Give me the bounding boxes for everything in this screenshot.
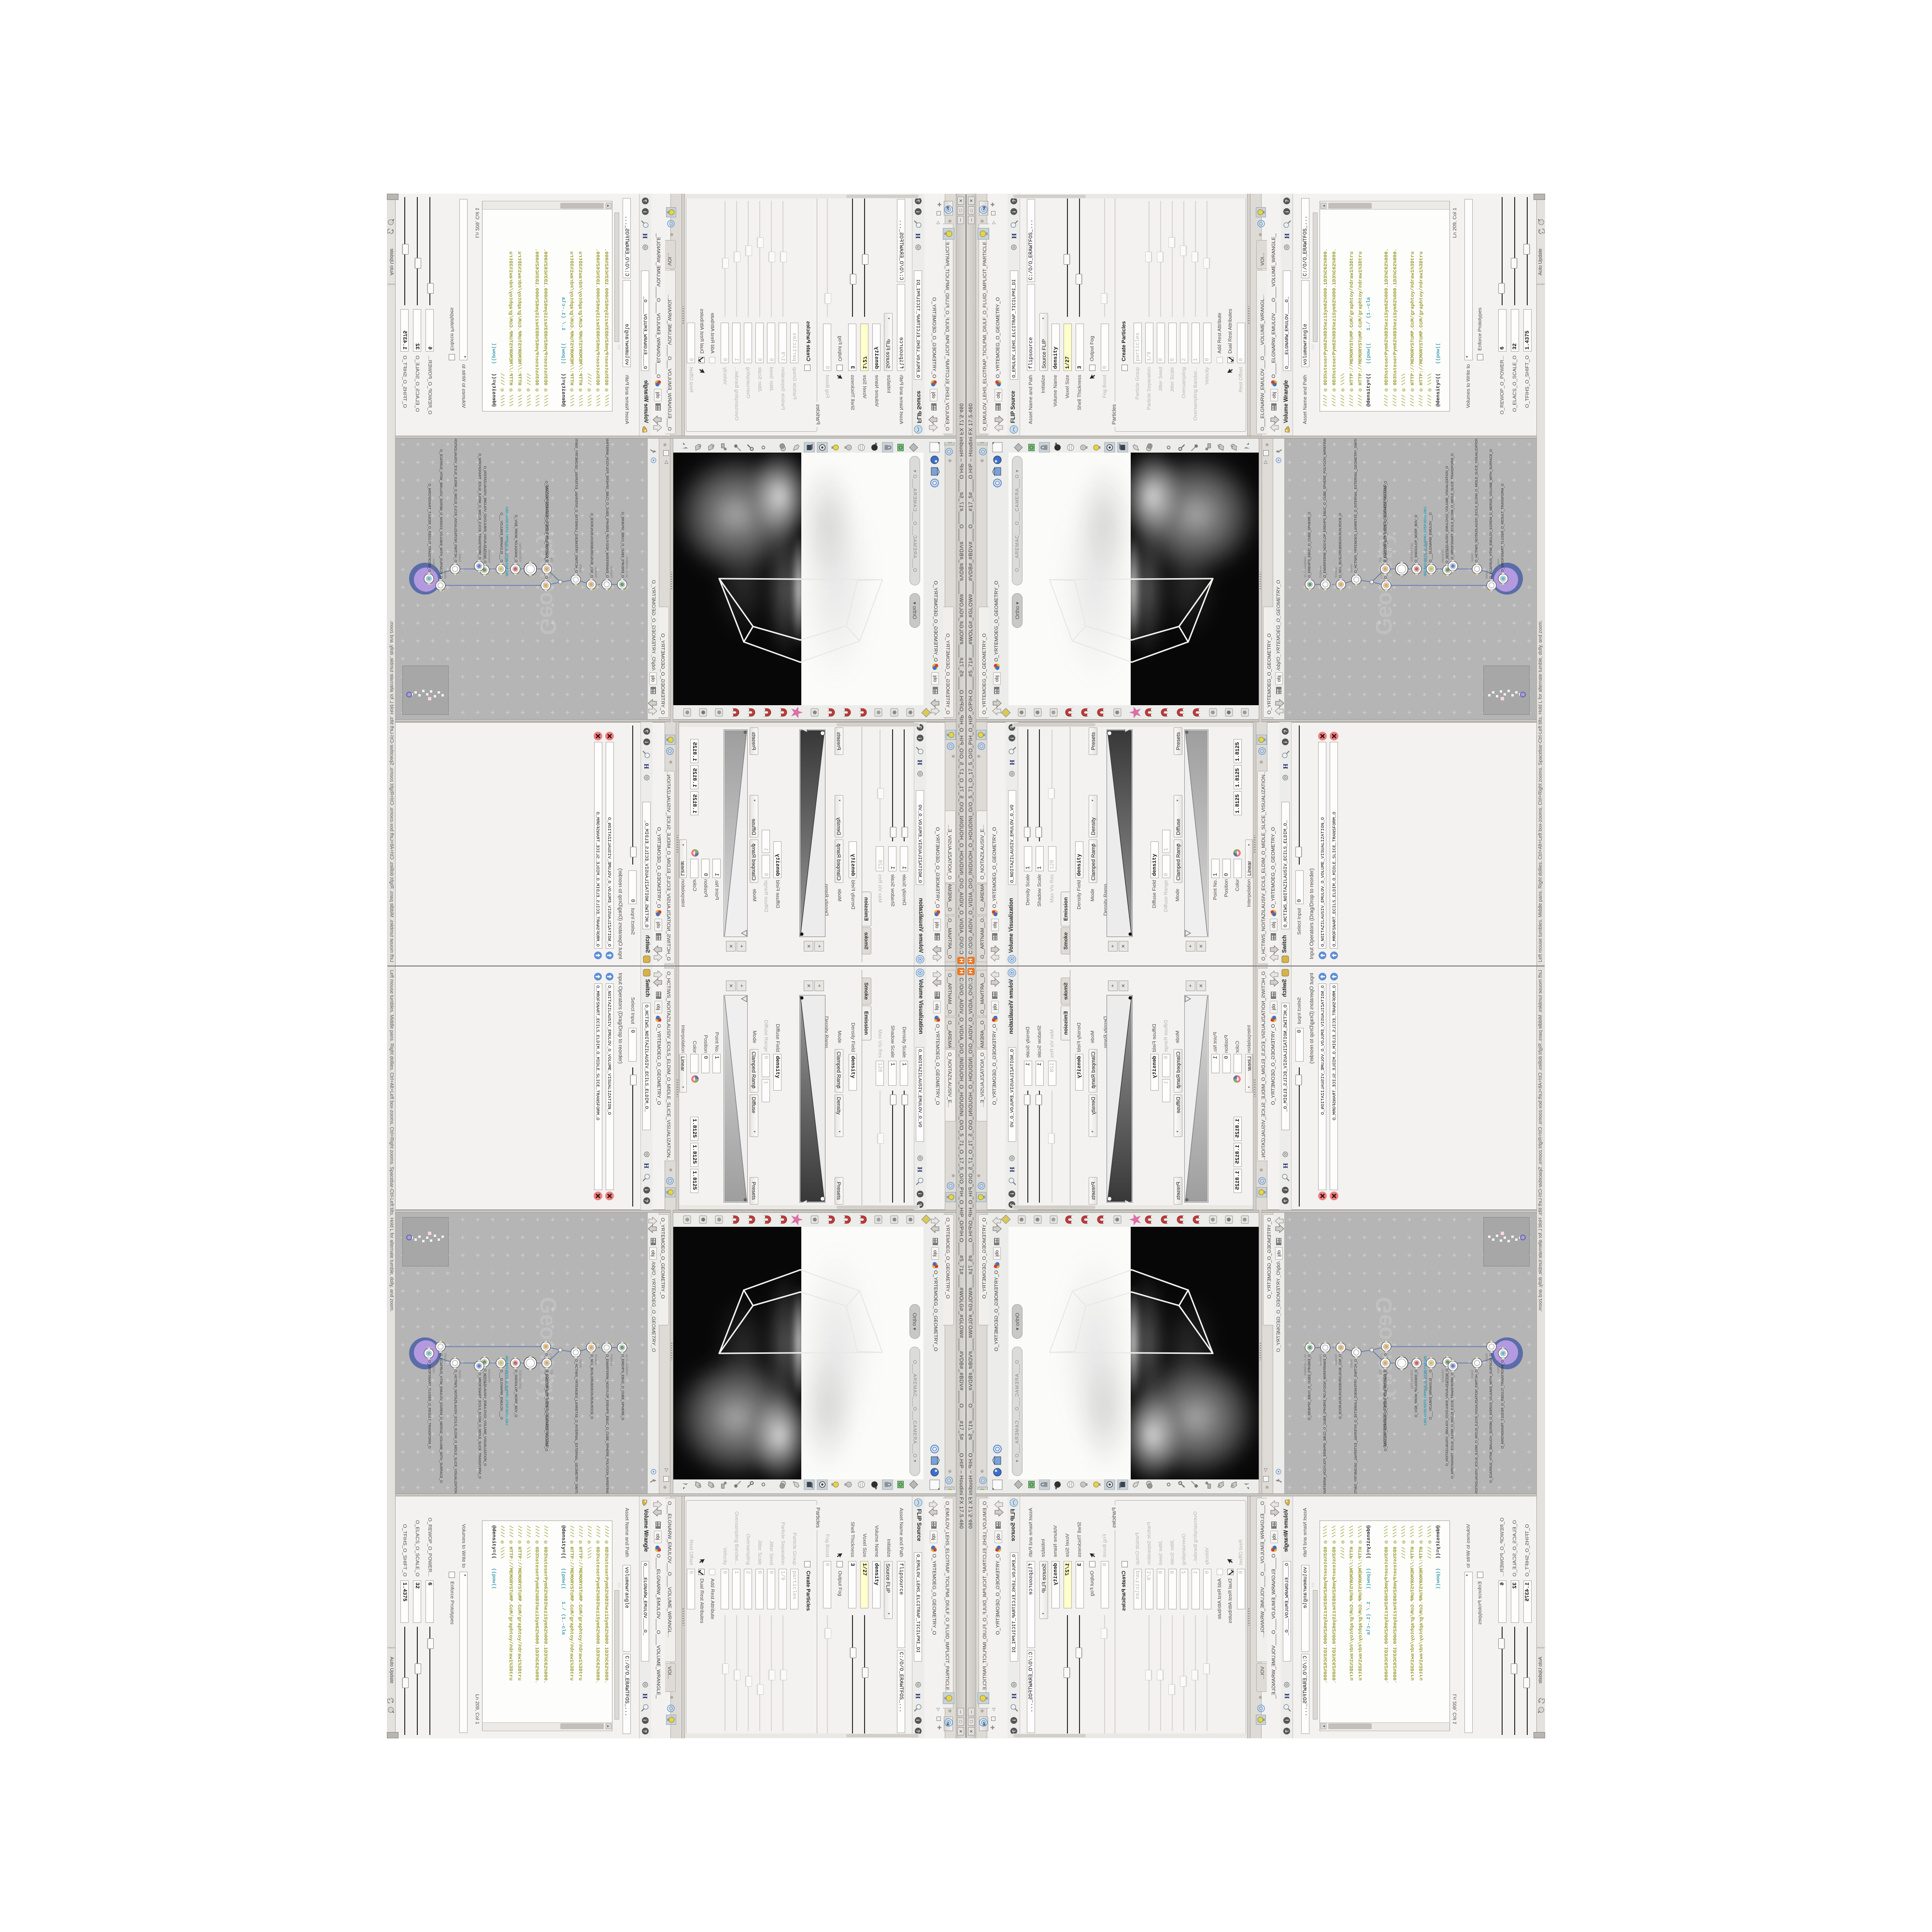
svg-text:H: H <box>1011 1693 1018 1699</box>
svg-text:?: ? <box>915 199 920 202</box>
svg-text:i: i <box>915 1719 920 1721</box>
svg-text:H: H <box>642 1163 650 1168</box>
svg-text:H: H <box>916 760 923 765</box>
svg-text:i: i <box>642 1719 647 1721</box>
svg-text:?: ? <box>1283 1199 1289 1202</box>
svg-text:i: i <box>1012 211 1017 213</box>
svg-text:?: ? <box>643 1199 649 1202</box>
svg-text:?: ? <box>642 1730 647 1733</box>
svg-text:H: H <box>914 1693 921 1699</box>
svg-text:?: ? <box>642 199 647 202</box>
svg-text:H: H <box>1282 764 1290 769</box>
svg-text:H: H <box>641 233 648 239</box>
svg-text:i: i <box>1283 741 1289 743</box>
svg-text:?: ? <box>1285 199 1290 202</box>
svg-text:?: ? <box>1283 730 1289 733</box>
svg-text:?: ? <box>1012 199 1017 202</box>
svg-text:i: i <box>1285 1719 1290 1721</box>
svg-text:i: i <box>643 1189 649 1191</box>
svg-text:i: i <box>915 211 920 213</box>
svg-text:H: H <box>1009 1167 1016 1172</box>
svg-text:H: H <box>914 233 921 239</box>
svg-text:i: i <box>1010 1193 1015 1194</box>
svg-text:H: H <box>642 764 650 769</box>
svg-text:?: ? <box>1285 1730 1290 1733</box>
svg-text:i: i <box>1012 1719 1017 1721</box>
svg-text:i: i <box>917 738 922 739</box>
svg-text:H: H <box>1284 1693 1291 1699</box>
svg-text:?: ? <box>643 730 649 733</box>
svg-text:H: H <box>1284 233 1291 239</box>
svg-text:H: H <box>916 1167 923 1172</box>
svg-text:i: i <box>917 1193 922 1194</box>
svg-text:i: i <box>1283 1189 1289 1191</box>
svg-text:?: ? <box>915 1730 920 1733</box>
svg-text:i: i <box>1010 738 1015 739</box>
svg-text:H: H <box>1009 760 1016 765</box>
svg-text:?: ? <box>1012 1730 1017 1733</box>
svg-text:i: i <box>1285 211 1290 213</box>
svg-text:i: i <box>643 741 649 743</box>
svg-text:H: H <box>1282 1163 1290 1168</box>
svg-text:H: H <box>641 1693 648 1699</box>
svg-text:H: H <box>1011 233 1018 239</box>
svg-text:i: i <box>642 211 647 213</box>
